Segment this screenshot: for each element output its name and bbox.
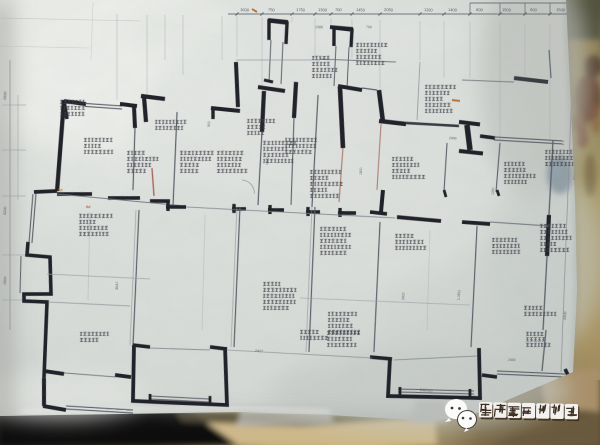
svg-text:1300: 1300 [315,25,323,29]
svg-text:700: 700 [335,7,343,12]
svg-text:1500: 1500 [556,7,566,12]
svg-text:900: 900 [207,121,211,127]
svg-text:2050: 2050 [384,7,394,12]
svg-text:2427: 2427 [255,349,263,353]
svg-text:2900: 2900 [563,311,567,320]
svg-text:2900: 2900 [401,292,405,300]
svg-text:2900: 2900 [3,91,7,100]
svg-text:1500: 1500 [3,276,7,285]
svg-text:1450: 1450 [356,7,366,12]
svg-text:1600: 1600 [240,7,250,12]
svg-text:750: 750 [268,7,276,12]
svg-text:2400: 2400 [449,136,457,140]
svg-text:1100: 1100 [424,7,434,12]
svg-text:2427(1): 2427(1) [420,388,433,393]
svg-text:1350: 1350 [491,187,495,195]
svg-text:1400: 1400 [448,7,458,12]
svg-text:2400: 2400 [508,358,516,362]
svg-text:1800: 1800 [359,167,363,175]
svg-text:600: 600 [476,7,484,12]
svg-text:1300: 1300 [318,7,328,12]
svg-text:600: 600 [530,7,538,12]
svg-text:1750: 1750 [296,7,306,12]
svg-text:3047: 3047 [115,281,119,290]
svg-text:1500: 1500 [502,7,512,12]
svg-text:1.0811: 1.0811 [457,290,461,300]
svg-text:700: 700 [366,25,372,29]
svg-text:3200: 3200 [3,206,7,215]
